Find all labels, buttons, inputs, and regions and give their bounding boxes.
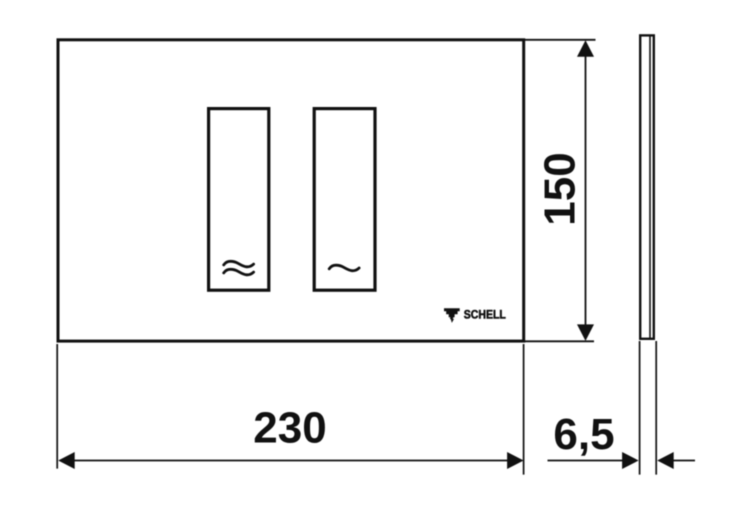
svg-text:SCHELL: SCHELL [464,308,506,322]
svg-text:150: 150 [536,152,585,225]
svg-text:6,5: 6,5 [553,410,614,459]
svg-text:230: 230 [253,404,326,453]
